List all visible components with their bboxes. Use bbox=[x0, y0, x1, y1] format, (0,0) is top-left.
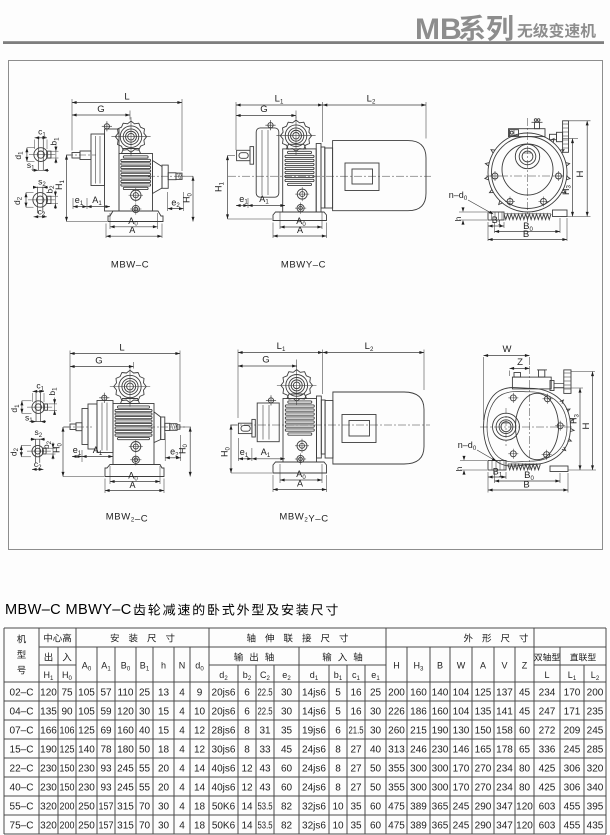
svg-text:4: 4 bbox=[179, 802, 185, 813]
svg-text:b1: b1 bbox=[334, 670, 343, 682]
svg-text:60: 60 bbox=[370, 802, 382, 813]
svg-text:320: 320 bbox=[587, 764, 604, 775]
svg-text:40: 40 bbox=[139, 726, 151, 737]
svg-text:166: 166 bbox=[40, 726, 57, 737]
svg-text:d1: d1 bbox=[9, 404, 21, 413]
svg-text:02–C: 02–C bbox=[10, 688, 34, 699]
svg-text:04–C: 04–C bbox=[10, 707, 34, 718]
svg-text:h: h bbox=[161, 661, 166, 671]
svg-text:270: 270 bbox=[475, 764, 492, 775]
svg-text:270: 270 bbox=[475, 783, 492, 794]
svg-text:8: 8 bbox=[335, 783, 341, 794]
svg-text:32js6: 32js6 bbox=[302, 821, 326, 832]
svg-text:25: 25 bbox=[139, 688, 151, 699]
svg-text:27: 27 bbox=[350, 764, 362, 775]
svg-text:170: 170 bbox=[564, 688, 581, 699]
svg-text:10: 10 bbox=[194, 707, 206, 718]
svg-text:425: 425 bbox=[539, 764, 556, 775]
svg-text:190: 190 bbox=[40, 745, 57, 756]
svg-text:L: L bbox=[544, 670, 549, 680]
svg-text:8: 8 bbox=[335, 764, 341, 775]
svg-text:82: 82 bbox=[281, 802, 293, 813]
svg-text:60: 60 bbox=[519, 726, 531, 737]
svg-text:120: 120 bbox=[516, 802, 533, 813]
svg-text:07–C: 07–C bbox=[10, 726, 34, 737]
svg-text:30: 30 bbox=[158, 802, 170, 813]
svg-text:250: 250 bbox=[78, 802, 95, 813]
svg-text:55–C: 55–C bbox=[10, 802, 34, 813]
svg-text:355: 355 bbox=[388, 764, 405, 775]
svg-text:80: 80 bbox=[519, 764, 531, 775]
svg-text:104: 104 bbox=[453, 707, 470, 718]
svg-text:12: 12 bbox=[241, 783, 253, 794]
svg-text:365: 365 bbox=[432, 802, 449, 813]
svg-text:14: 14 bbox=[241, 821, 253, 832]
svg-text:43: 43 bbox=[259, 783, 271, 794]
svg-text:L1: L1 bbox=[275, 94, 284, 106]
svg-text:347: 347 bbox=[496, 821, 513, 832]
svg-text:50: 50 bbox=[370, 764, 382, 775]
svg-text:Z: Z bbox=[522, 661, 528, 671]
svg-text:320: 320 bbox=[40, 821, 57, 832]
svg-text:226: 226 bbox=[388, 707, 405, 718]
svg-text:C2: C2 bbox=[260, 670, 271, 682]
svg-text:16: 16 bbox=[350, 707, 362, 718]
svg-text:4: 4 bbox=[179, 764, 185, 775]
svg-text:43: 43 bbox=[259, 764, 271, 775]
svg-text:MBW–C: MBW–C bbox=[111, 260, 149, 271]
svg-text:140: 140 bbox=[432, 688, 449, 699]
svg-text:c1: c1 bbox=[36, 381, 44, 393]
svg-text:272: 272 bbox=[539, 726, 556, 737]
svg-text:93: 93 bbox=[100, 764, 112, 775]
svg-text:27: 27 bbox=[350, 783, 362, 794]
svg-text:32js6: 32js6 bbox=[302, 802, 326, 813]
svg-text:235: 235 bbox=[587, 707, 604, 718]
svg-text:35: 35 bbox=[350, 821, 362, 832]
svg-text:MBW2–C: MBW2–C bbox=[106, 512, 148, 525]
svg-text:e2: e2 bbox=[282, 670, 291, 682]
svg-text:160: 160 bbox=[432, 707, 449, 718]
svg-text:W: W bbox=[457, 661, 466, 671]
svg-text:69: 69 bbox=[100, 726, 112, 737]
svg-text:347: 347 bbox=[496, 802, 513, 813]
svg-text:14js6: 14js6 bbox=[302, 688, 326, 699]
svg-text:70: 70 bbox=[139, 802, 151, 813]
svg-text:H0: H0 bbox=[177, 443, 189, 454]
svg-text:234: 234 bbox=[496, 764, 513, 775]
svg-text:135: 135 bbox=[40, 707, 57, 718]
svg-text:A: A bbox=[480, 661, 486, 671]
svg-text:16: 16 bbox=[350, 688, 362, 699]
svg-text:30: 30 bbox=[370, 707, 382, 718]
svg-text:60: 60 bbox=[281, 783, 293, 794]
svg-text:H3: H3 bbox=[569, 413, 581, 424]
svg-text:70: 70 bbox=[139, 821, 151, 832]
svg-text:146: 146 bbox=[453, 745, 470, 756]
svg-text:82: 82 bbox=[281, 821, 293, 832]
svg-text:h: h bbox=[454, 466, 464, 471]
svg-text:MBWY–C: MBWY–C bbox=[281, 260, 326, 271]
svg-text:G: G bbox=[97, 104, 104, 115]
svg-text:35: 35 bbox=[350, 802, 362, 813]
svg-text:105: 105 bbox=[78, 688, 95, 699]
svg-text:105: 105 bbox=[78, 707, 95, 718]
svg-text:A0: A0 bbox=[82, 661, 92, 673]
svg-text:20js6: 20js6 bbox=[212, 688, 236, 699]
svg-text:40js6: 40js6 bbox=[212, 783, 236, 794]
svg-text:355: 355 bbox=[388, 783, 405, 794]
svg-text:s2: s2 bbox=[38, 176, 46, 188]
svg-text:4: 4 bbox=[179, 726, 185, 737]
svg-text:90: 90 bbox=[61, 707, 73, 718]
svg-text:W: W bbox=[503, 344, 512, 355]
svg-text:180: 180 bbox=[117, 745, 134, 756]
svg-text:300: 300 bbox=[410, 783, 427, 794]
svg-text:e1: e1 bbox=[239, 194, 248, 206]
svg-text:A: A bbox=[129, 480, 135, 490]
svg-text:12: 12 bbox=[194, 726, 206, 737]
svg-text:245: 245 bbox=[564, 745, 581, 756]
svg-text:300: 300 bbox=[432, 783, 449, 794]
svg-text:395: 395 bbox=[587, 802, 604, 813]
svg-text:245: 245 bbox=[587, 726, 604, 737]
svg-text:475: 475 bbox=[388, 802, 405, 813]
svg-text:165: 165 bbox=[475, 745, 492, 756]
svg-text:b1: b1 bbox=[49, 137, 61, 146]
svg-text:e2: e2 bbox=[171, 197, 180, 209]
svg-text:24js6: 24js6 bbox=[302, 764, 326, 775]
svg-text:d0: d0 bbox=[195, 661, 204, 673]
svg-text:40: 40 bbox=[370, 745, 382, 756]
svg-text:53.5: 53.5 bbox=[258, 802, 273, 813]
svg-text:170: 170 bbox=[453, 783, 470, 794]
svg-text:H0: H0 bbox=[220, 446, 232, 457]
svg-text:315: 315 bbox=[117, 821, 134, 832]
svg-text:30: 30 bbox=[370, 726, 382, 737]
svg-text:c1: c1 bbox=[38, 127, 46, 139]
svg-text:H1: H1 bbox=[44, 670, 55, 682]
svg-text:d2: d2 bbox=[12, 196, 24, 205]
svg-text:603: 603 bbox=[539, 802, 556, 813]
svg-text:93: 93 bbox=[100, 783, 112, 794]
svg-text:160: 160 bbox=[410, 688, 427, 699]
svg-text:300: 300 bbox=[432, 764, 449, 775]
svg-text:135: 135 bbox=[475, 707, 492, 718]
svg-text:40js6: 40js6 bbox=[212, 764, 236, 775]
svg-text:245: 245 bbox=[453, 802, 470, 813]
svg-text:MB: MB bbox=[415, 13, 462, 46]
svg-text:125: 125 bbox=[60, 745, 75, 756]
svg-text:31: 31 bbox=[259, 726, 271, 737]
svg-text:55: 55 bbox=[139, 764, 151, 775]
svg-text:G: G bbox=[95, 356, 102, 367]
svg-text:53.5: 53.5 bbox=[258, 821, 273, 832]
svg-text:c1: c1 bbox=[352, 670, 361, 682]
svg-text:6: 6 bbox=[244, 688, 250, 699]
svg-text:25: 25 bbox=[370, 688, 382, 699]
svg-text:20js6: 20js6 bbox=[212, 707, 236, 718]
svg-text:170: 170 bbox=[453, 764, 470, 775]
svg-text:320: 320 bbox=[40, 802, 57, 813]
svg-text:G: G bbox=[260, 104, 267, 115]
svg-text:B: B bbox=[523, 479, 529, 490]
svg-text:21.5: 21.5 bbox=[349, 726, 364, 737]
svg-text:V: V bbox=[501, 661, 507, 671]
svg-text:300: 300 bbox=[410, 764, 427, 775]
svg-text:s2: s2 bbox=[34, 427, 42, 439]
svg-text:186: 186 bbox=[410, 707, 427, 718]
svg-text:d1: d1 bbox=[13, 151, 25, 160]
svg-text:340: 340 bbox=[587, 783, 604, 794]
svg-text:50: 50 bbox=[139, 745, 151, 756]
svg-text:45: 45 bbox=[519, 688, 531, 699]
svg-text:27: 27 bbox=[350, 745, 362, 756]
svg-text:125: 125 bbox=[78, 726, 95, 737]
svg-text:G: G bbox=[262, 355, 269, 366]
svg-text:B: B bbox=[523, 229, 529, 240]
svg-text:120: 120 bbox=[40, 688, 57, 699]
svg-text:5: 5 bbox=[335, 707, 341, 718]
svg-text:234: 234 bbox=[539, 688, 556, 699]
svg-text:209: 209 bbox=[564, 726, 581, 737]
svg-text:247: 247 bbox=[539, 707, 556, 718]
svg-text:150: 150 bbox=[475, 726, 492, 737]
svg-text:14: 14 bbox=[241, 802, 253, 813]
svg-text:290: 290 bbox=[475, 802, 492, 813]
svg-text:158: 158 bbox=[496, 726, 513, 737]
svg-text:125: 125 bbox=[475, 688, 492, 699]
svg-text:285: 285 bbox=[587, 745, 604, 756]
svg-text:e1: e1 bbox=[240, 447, 249, 459]
svg-text:45: 45 bbox=[281, 745, 293, 756]
svg-text:H3: H3 bbox=[561, 184, 573, 195]
svg-text:60: 60 bbox=[370, 821, 382, 832]
svg-text:455: 455 bbox=[564, 802, 581, 813]
svg-text:30js6: 30js6 bbox=[212, 745, 236, 756]
svg-text:L2: L2 bbox=[591, 670, 600, 682]
svg-text:8: 8 bbox=[335, 745, 341, 756]
svg-text:Z: Z bbox=[517, 357, 523, 368]
svg-text:H3: H3 bbox=[414, 661, 425, 673]
svg-text:A1: A1 bbox=[92, 195, 102, 207]
svg-text:d1: d1 bbox=[310, 670, 319, 682]
svg-text:10: 10 bbox=[332, 802, 344, 813]
svg-text:313: 313 bbox=[388, 745, 405, 756]
svg-text:4: 4 bbox=[179, 688, 185, 699]
svg-text:13: 13 bbox=[158, 688, 170, 699]
svg-text:c2: c2 bbox=[38, 206, 46, 218]
svg-text:50K6: 50K6 bbox=[212, 821, 236, 832]
svg-text:18: 18 bbox=[194, 821, 206, 832]
svg-text:171: 171 bbox=[564, 707, 581, 718]
svg-text:22.5: 22.5 bbox=[258, 707, 273, 718]
svg-text:L1: L1 bbox=[277, 341, 286, 353]
svg-text:6: 6 bbox=[335, 726, 341, 737]
svg-text:20: 20 bbox=[158, 764, 170, 775]
svg-text:H: H bbox=[393, 661, 400, 671]
svg-text:425: 425 bbox=[539, 783, 556, 794]
svg-text:A1: A1 bbox=[101, 661, 111, 673]
svg-text:603: 603 bbox=[539, 821, 556, 832]
svg-text:234: 234 bbox=[496, 783, 513, 794]
svg-text:A1: A1 bbox=[93, 445, 103, 457]
svg-text:12: 12 bbox=[194, 745, 206, 756]
svg-text:50: 50 bbox=[370, 783, 382, 794]
svg-text:230: 230 bbox=[78, 783, 95, 794]
svg-text:15–C: 15–C bbox=[10, 745, 34, 756]
svg-text:106: 106 bbox=[60, 726, 75, 737]
svg-text:246: 246 bbox=[410, 745, 427, 756]
svg-text:230: 230 bbox=[432, 745, 449, 756]
svg-text:245: 245 bbox=[117, 764, 134, 775]
svg-text:60: 60 bbox=[281, 764, 293, 775]
svg-text:5: 5 bbox=[335, 688, 341, 699]
svg-text:8: 8 bbox=[244, 726, 250, 737]
svg-text:19js6: 19js6 bbox=[302, 726, 326, 737]
svg-text:N: N bbox=[179, 661, 186, 671]
svg-text:A1: A1 bbox=[259, 194, 269, 206]
svg-text:178: 178 bbox=[496, 745, 513, 756]
svg-text:150: 150 bbox=[60, 764, 75, 775]
svg-text:4: 4 bbox=[179, 745, 185, 756]
svg-text:A: A bbox=[297, 225, 303, 235]
svg-text:15: 15 bbox=[158, 726, 170, 737]
svg-text:H1: H1 bbox=[214, 181, 226, 192]
svg-text:200: 200 bbox=[388, 688, 405, 699]
svg-text:200: 200 bbox=[60, 821, 75, 832]
svg-text:75: 75 bbox=[61, 688, 73, 699]
svg-text:157: 157 bbox=[99, 802, 114, 813]
svg-text:475: 475 bbox=[388, 821, 405, 832]
svg-text:110: 110 bbox=[118, 688, 134, 699]
svg-text:245: 245 bbox=[453, 821, 470, 832]
svg-text:B1: B1 bbox=[492, 215, 502, 227]
svg-text:230: 230 bbox=[78, 764, 95, 775]
svg-text:18: 18 bbox=[194, 802, 206, 813]
svg-text:30: 30 bbox=[281, 688, 293, 699]
svg-text:24js6: 24js6 bbox=[302, 745, 326, 756]
svg-text:b2: b2 bbox=[243, 670, 252, 682]
svg-text:389: 389 bbox=[410, 802, 427, 813]
svg-text:365: 365 bbox=[432, 821, 449, 832]
svg-text:260: 260 bbox=[388, 726, 405, 737]
svg-text:B1: B1 bbox=[140, 661, 150, 673]
svg-text:d2: d2 bbox=[219, 670, 228, 682]
svg-text:L: L bbox=[124, 92, 129, 103]
svg-text:H0: H0 bbox=[62, 670, 73, 682]
svg-text:50K6: 50K6 bbox=[212, 802, 236, 813]
svg-text:MBW2Y–C: MBW2Y–C bbox=[279, 512, 328, 525]
svg-text:8: 8 bbox=[244, 745, 250, 756]
svg-text:12: 12 bbox=[241, 764, 253, 775]
svg-text:A1: A1 bbox=[261, 447, 271, 459]
svg-text:15: 15 bbox=[158, 707, 170, 718]
svg-text:59: 59 bbox=[100, 707, 112, 718]
svg-text:230: 230 bbox=[40, 783, 57, 794]
svg-text:45: 45 bbox=[519, 707, 531, 718]
svg-text:MBW–C MBWY–C: MBW–C MBWY–C bbox=[5, 602, 132, 618]
svg-text:455: 455 bbox=[564, 821, 581, 832]
svg-text:306: 306 bbox=[564, 783, 581, 794]
svg-text:290: 290 bbox=[475, 821, 492, 832]
svg-text:22.5: 22.5 bbox=[258, 688, 273, 699]
svg-text:200: 200 bbox=[60, 802, 75, 813]
svg-text:130: 130 bbox=[453, 726, 470, 737]
svg-text:A: A bbox=[297, 479, 303, 489]
svg-text:h: h bbox=[453, 216, 463, 221]
svg-text:14js6: 14js6 bbox=[302, 707, 326, 718]
svg-text:157: 157 bbox=[99, 821, 114, 832]
svg-text:75–C: 75–C bbox=[10, 821, 34, 832]
svg-text:L1: L1 bbox=[568, 670, 577, 682]
svg-text:30: 30 bbox=[158, 821, 170, 832]
svg-text:14: 14 bbox=[194, 783, 206, 794]
svg-text:30: 30 bbox=[281, 707, 293, 718]
svg-text:200: 200 bbox=[587, 688, 604, 699]
svg-text:104: 104 bbox=[453, 688, 470, 699]
svg-text:65: 65 bbox=[519, 745, 531, 756]
svg-text:30: 30 bbox=[139, 707, 151, 718]
svg-text:L: L bbox=[119, 343, 124, 354]
svg-text:140: 140 bbox=[78, 745, 95, 756]
svg-text:245: 245 bbox=[117, 783, 134, 794]
svg-text:190: 190 bbox=[432, 726, 449, 737]
svg-text:L2: L2 bbox=[365, 341, 374, 353]
svg-text:18: 18 bbox=[158, 745, 170, 756]
svg-text:e1: e1 bbox=[75, 195, 84, 207]
svg-text:H: H bbox=[581, 422, 592, 429]
svg-text:4: 4 bbox=[179, 783, 185, 794]
svg-text:250: 250 bbox=[78, 821, 95, 832]
svg-text:9: 9 bbox=[197, 688, 203, 699]
svg-text:d2: d2 bbox=[8, 447, 20, 456]
svg-text:e1: e1 bbox=[73, 445, 82, 457]
svg-text:20: 20 bbox=[158, 783, 170, 794]
svg-text:4: 4 bbox=[179, 707, 185, 718]
svg-text:55: 55 bbox=[139, 783, 151, 794]
svg-text:e1: e1 bbox=[371, 670, 380, 682]
svg-text:120: 120 bbox=[516, 821, 533, 832]
svg-text:B0: B0 bbox=[121, 661, 131, 673]
svg-text:137: 137 bbox=[496, 688, 513, 699]
svg-text:B: B bbox=[437, 661, 443, 671]
svg-text:14: 14 bbox=[194, 764, 206, 775]
svg-text:435: 435 bbox=[587, 821, 604, 832]
svg-text:n–d0: n–d0 bbox=[449, 190, 468, 202]
svg-text:35: 35 bbox=[281, 726, 293, 737]
svg-text:389: 389 bbox=[410, 821, 427, 832]
svg-text:80: 80 bbox=[519, 783, 531, 794]
svg-text:230: 230 bbox=[40, 764, 57, 775]
svg-text:28js6: 28js6 bbox=[212, 726, 236, 737]
svg-text:306: 306 bbox=[564, 764, 581, 775]
svg-text:215: 215 bbox=[410, 726, 427, 737]
svg-text:160: 160 bbox=[117, 726, 134, 737]
svg-text:n–d0: n–d0 bbox=[458, 440, 477, 452]
svg-text:57: 57 bbox=[100, 688, 112, 699]
svg-text:40–C: 40–C bbox=[10, 783, 34, 794]
svg-text:78: 78 bbox=[100, 745, 112, 756]
svg-text:336: 336 bbox=[539, 745, 556, 756]
svg-text:315: 315 bbox=[117, 802, 134, 813]
svg-text:H: H bbox=[575, 170, 586, 177]
svg-text:150: 150 bbox=[60, 783, 75, 794]
svg-text:L2: L2 bbox=[367, 94, 376, 106]
svg-text:141: 141 bbox=[496, 707, 513, 718]
svg-text:4: 4 bbox=[179, 821, 185, 832]
svg-text:10: 10 bbox=[332, 821, 344, 832]
